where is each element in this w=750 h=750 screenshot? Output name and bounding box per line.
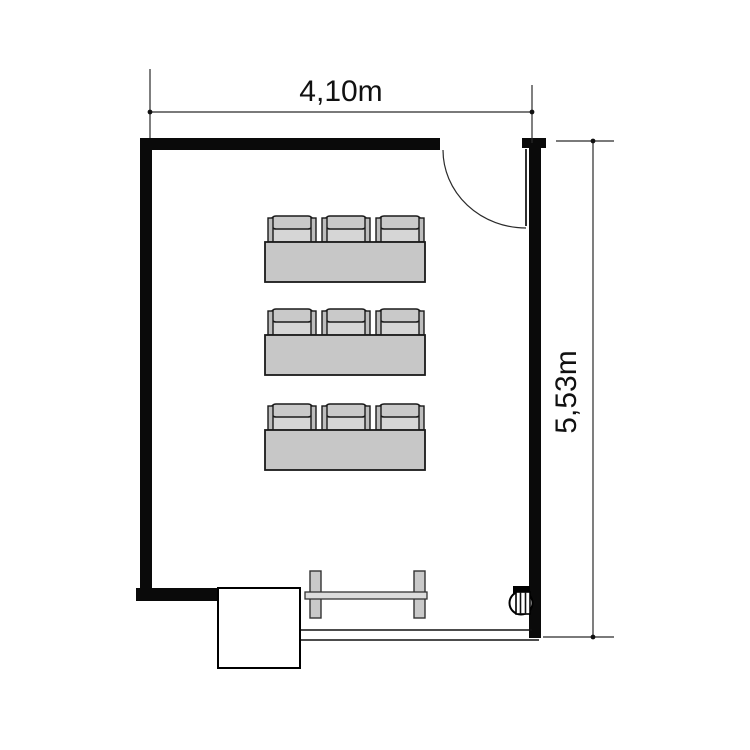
- floor-plan-canvas: 4,10m 5,53m: [0, 0, 750, 750]
- bottom-left-wall: [136, 588, 218, 601]
- door-jamb-stub: [522, 138, 546, 148]
- bottom-boundary: [300, 630, 539, 640]
- door: [443, 149, 526, 228]
- student-table: [265, 430, 425, 470]
- student-table: [265, 335, 425, 375]
- student-table: [265, 242, 425, 282]
- door-swing-arc: [443, 150, 526, 228]
- desk-row-1: [265, 216, 425, 282]
- chair: [322, 216, 370, 242]
- top-wall: [140, 138, 440, 150]
- chair: [376, 216, 424, 242]
- cabinet: [218, 588, 300, 668]
- desk-row-3: [265, 404, 425, 470]
- chair: [268, 216, 316, 242]
- dimension-marker: [591, 635, 596, 640]
- dimension-marker: [148, 110, 153, 115]
- room-walls: [136, 138, 546, 638]
- chair: [322, 309, 370, 335]
- chair: [376, 404, 424, 430]
- width-dimension: 4,10m: [148, 69, 535, 143]
- chair: [376, 309, 424, 335]
- teacher-table: [305, 571, 427, 618]
- chair: [322, 404, 370, 430]
- table-crossbar: [305, 592, 427, 599]
- height-dimension: 5,53m: [543, 139, 614, 640]
- width-dimension-label: 4,10m: [299, 75, 382, 108]
- round-wall-fixture: [510, 586, 533, 615]
- chair: [268, 404, 316, 430]
- fixture-box: [516, 592, 530, 614]
- right-wall: [529, 148, 541, 638]
- left-wall: [140, 138, 152, 600]
- floor-plan-drawing: 4,10m 5,53m: [0, 0, 750, 750]
- dimension-marker: [591, 139, 596, 144]
- dimension-marker: [530, 110, 535, 115]
- desk-row-2: [265, 309, 425, 375]
- chair: [268, 309, 316, 335]
- height-dimension-label: 5,53m: [550, 350, 583, 433]
